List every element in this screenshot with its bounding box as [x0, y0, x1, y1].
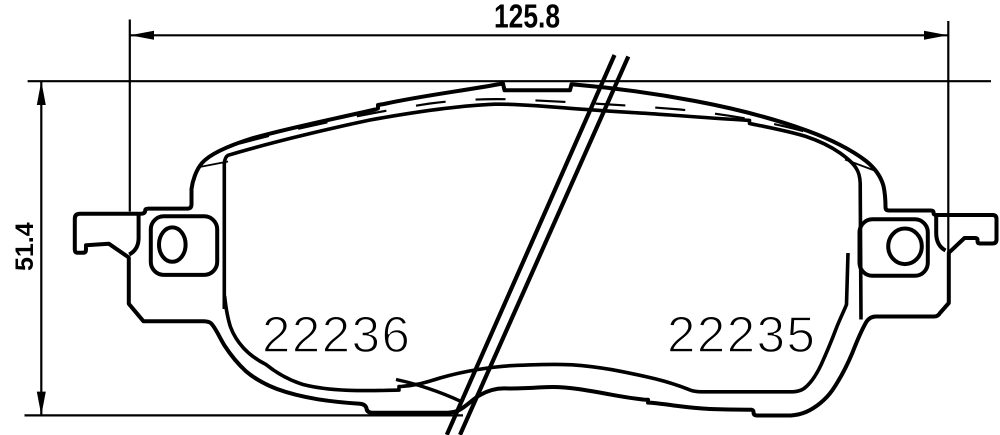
svg-text:22236: 22236	[262, 306, 411, 363]
svg-text:22235: 22235	[667, 306, 816, 363]
svg-text:51.4: 51.4	[11, 222, 39, 271]
svg-text:125.8: 125.8	[494, 0, 560, 35]
